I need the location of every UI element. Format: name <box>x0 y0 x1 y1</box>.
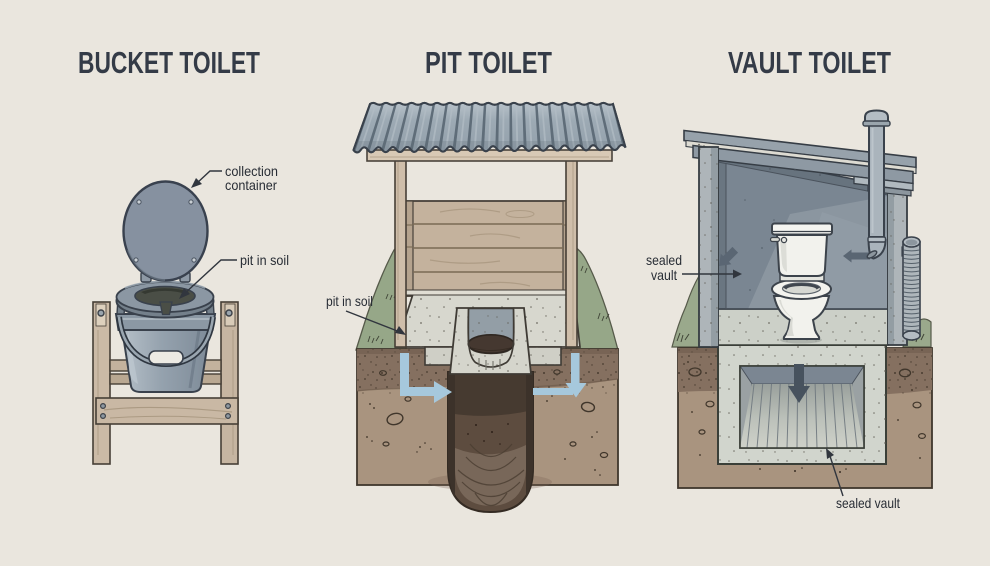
svg-text:vault: vault <box>651 268 677 283</box>
svg-text:PIT TOILET: PIT TOILET <box>425 45 552 80</box>
svg-text:BUCKET TOILET: BUCKET TOILET <box>78 45 260 80</box>
svg-text:sealed vault: sealed vault <box>836 496 900 511</box>
svg-text:VAULT TOILET: VAULT TOILET <box>728 45 891 80</box>
svg-text:sealed: sealed <box>646 253 682 268</box>
svg-text:pit in soil: pit in soil <box>326 294 373 309</box>
svg-text:collection: collection <box>225 164 278 179</box>
svg-text:container: container <box>225 178 277 193</box>
svg-text:pit in soil: pit in soil <box>240 253 289 268</box>
